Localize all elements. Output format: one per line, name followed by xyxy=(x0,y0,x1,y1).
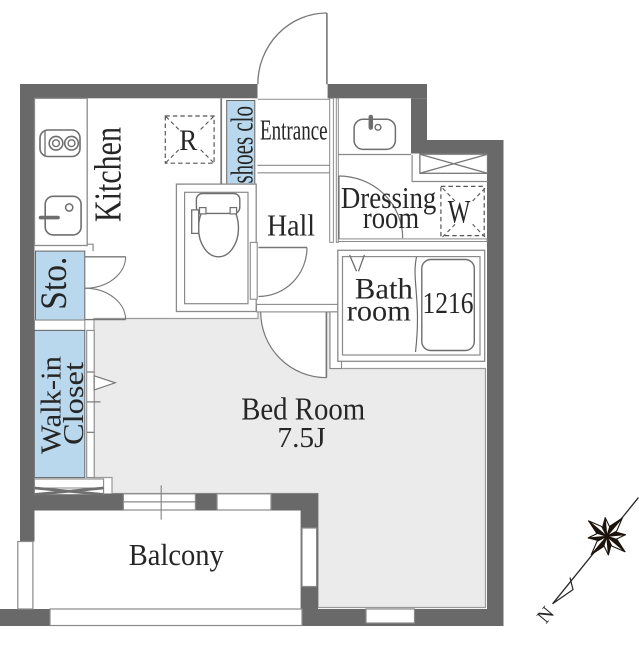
svg-text:room: room xyxy=(347,295,411,327)
svg-text:R: R xyxy=(179,124,197,157)
svg-text:W: W xyxy=(448,194,471,230)
svg-text:shoes clo: shoes clo xyxy=(224,106,260,184)
svg-text:Bed Room: Bed Room xyxy=(241,392,365,427)
svg-text:Hall: Hall xyxy=(267,209,315,243)
svg-text:Sto.: Sto. xyxy=(33,257,74,310)
svg-text:Closet: Closet xyxy=(58,362,90,445)
svg-text:1216: 1216 xyxy=(423,285,474,320)
svg-text:Kitchen: Kitchen xyxy=(87,127,129,222)
svg-text:7.5J: 7.5J xyxy=(277,423,325,454)
svg-text:room: room xyxy=(363,200,419,235)
svg-text:Entrance: Entrance xyxy=(260,115,328,146)
svg-text:Balcony: Balcony xyxy=(129,537,224,572)
